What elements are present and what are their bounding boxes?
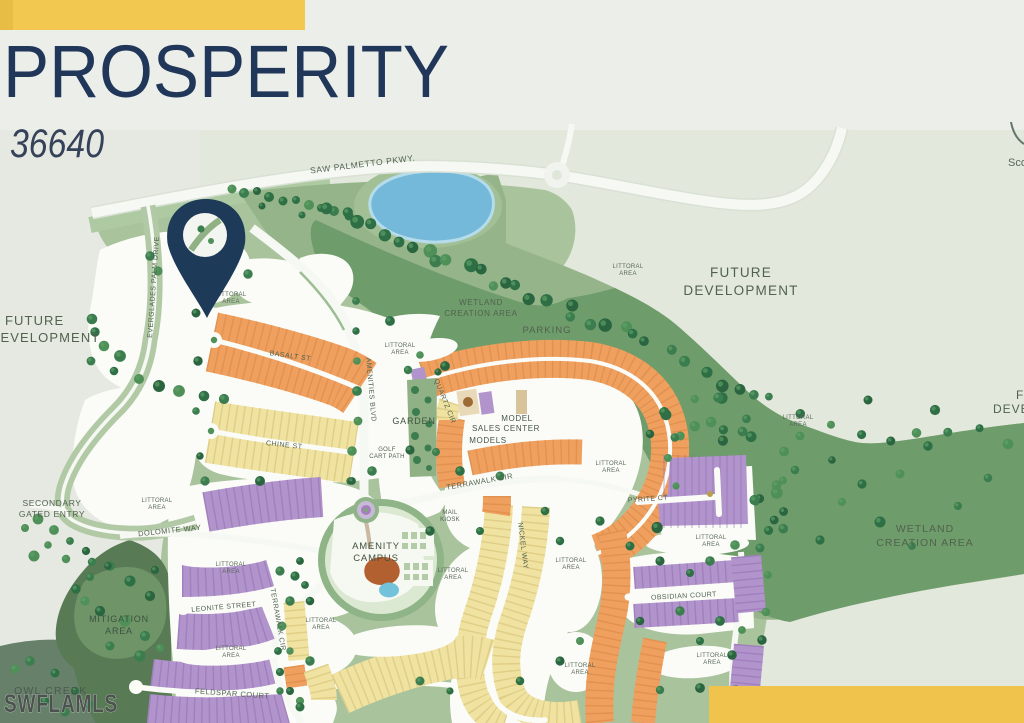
svg-text:LITTORAL: LITTORAL bbox=[596, 461, 627, 467]
svg-text:MAIL: MAIL bbox=[442, 510, 458, 516]
svg-text:AREA: AREA bbox=[703, 660, 721, 666]
svg-text:FU: FU bbox=[1016, 388, 1024, 402]
svg-text:Sco: Sco bbox=[1008, 157, 1024, 169]
svg-text:MODELS: MODELS bbox=[469, 436, 506, 445]
svg-text:LITTORAL: LITTORAL bbox=[216, 562, 247, 568]
svg-text:AREA: AREA bbox=[702, 542, 720, 548]
svg-text:AREA: AREA bbox=[222, 653, 240, 659]
svg-text:WETLAND: WETLAND bbox=[896, 523, 954, 535]
svg-text:LITTORAL: LITTORAL bbox=[697, 653, 728, 659]
svg-text:CAMPUS: CAMPUS bbox=[353, 553, 398, 564]
svg-text:MITIGATION: MITIGATION bbox=[89, 614, 149, 624]
svg-text:AREA: AREA bbox=[602, 468, 620, 474]
svg-text:LITTORAL: LITTORAL bbox=[696, 535, 727, 541]
svg-text:AREA: AREA bbox=[148, 505, 166, 511]
svg-text:CREATION AREA: CREATION AREA bbox=[444, 309, 517, 318]
svg-text:AREA: AREA bbox=[571, 670, 589, 676]
svg-text:DEVE: DEVE bbox=[993, 402, 1024, 416]
svg-text:LITTORAL: LITTORAL bbox=[216, 646, 247, 652]
svg-text:FUTURE: FUTURE bbox=[710, 265, 772, 280]
svg-text:CART PATH: CART PATH bbox=[369, 454, 405, 460]
svg-text:LITTORAL: LITTORAL bbox=[142, 498, 173, 504]
svg-text:LITTORAL: LITTORAL bbox=[438, 568, 469, 574]
svg-text:AREA: AREA bbox=[391, 350, 409, 356]
svg-text:PROSPERITY: PROSPERITY bbox=[3, 30, 449, 113]
svg-text:AREA: AREA bbox=[562, 565, 580, 571]
svg-text:DEVELOPMENT: DEVELOPMENT bbox=[683, 283, 798, 298]
svg-text:LITTORAL: LITTORAL bbox=[306, 618, 337, 624]
svg-text:PARKING: PARKING bbox=[522, 325, 571, 336]
svg-text:SWFLAMLS: SWFLAMLS bbox=[4, 690, 118, 718]
svg-text:36640: 36640 bbox=[10, 122, 104, 166]
svg-text:GARDEN: GARDEN bbox=[392, 416, 435, 426]
svg-text:AREA: AREA bbox=[444, 575, 462, 581]
svg-text:AREA: AREA bbox=[312, 625, 330, 631]
svg-text:AREA: AREA bbox=[222, 299, 240, 305]
svg-text:FUTURE: FUTURE bbox=[5, 313, 64, 328]
svg-text:MODEL: MODEL bbox=[501, 414, 532, 423]
svg-text:KIOSK: KIOSK bbox=[440, 517, 460, 523]
svg-text:AREA: AREA bbox=[105, 626, 133, 636]
svg-text:GOLF: GOLF bbox=[378, 447, 396, 453]
svg-text:CREATION AREA: CREATION AREA bbox=[876, 537, 973, 549]
svg-text:AREA: AREA bbox=[619, 271, 637, 277]
svg-text:SECONDARY: SECONDARY bbox=[22, 498, 81, 508]
svg-text:LITTORAL: LITTORAL bbox=[385, 343, 416, 349]
svg-text:LITTORAL: LITTORAL bbox=[613, 264, 644, 270]
svg-text:LITTORAL: LITTORAL bbox=[556, 558, 587, 564]
svg-text:LITTORAL: LITTORAL bbox=[783, 415, 814, 421]
svg-text:GATED ENTRY: GATED ENTRY bbox=[19, 509, 85, 519]
svg-text:AREA: AREA bbox=[789, 422, 807, 428]
svg-text:WETLAND: WETLAND bbox=[459, 298, 503, 307]
svg-text:AMENITY: AMENITY bbox=[352, 541, 400, 552]
svg-text:DEVELOPMENT: DEVELOPMENT bbox=[0, 330, 100, 345]
svg-text:AREA: AREA bbox=[222, 569, 240, 575]
svg-text:SALES CENTER: SALES CENTER bbox=[472, 424, 540, 433]
svg-text:LITTORAL: LITTORAL bbox=[565, 663, 596, 669]
